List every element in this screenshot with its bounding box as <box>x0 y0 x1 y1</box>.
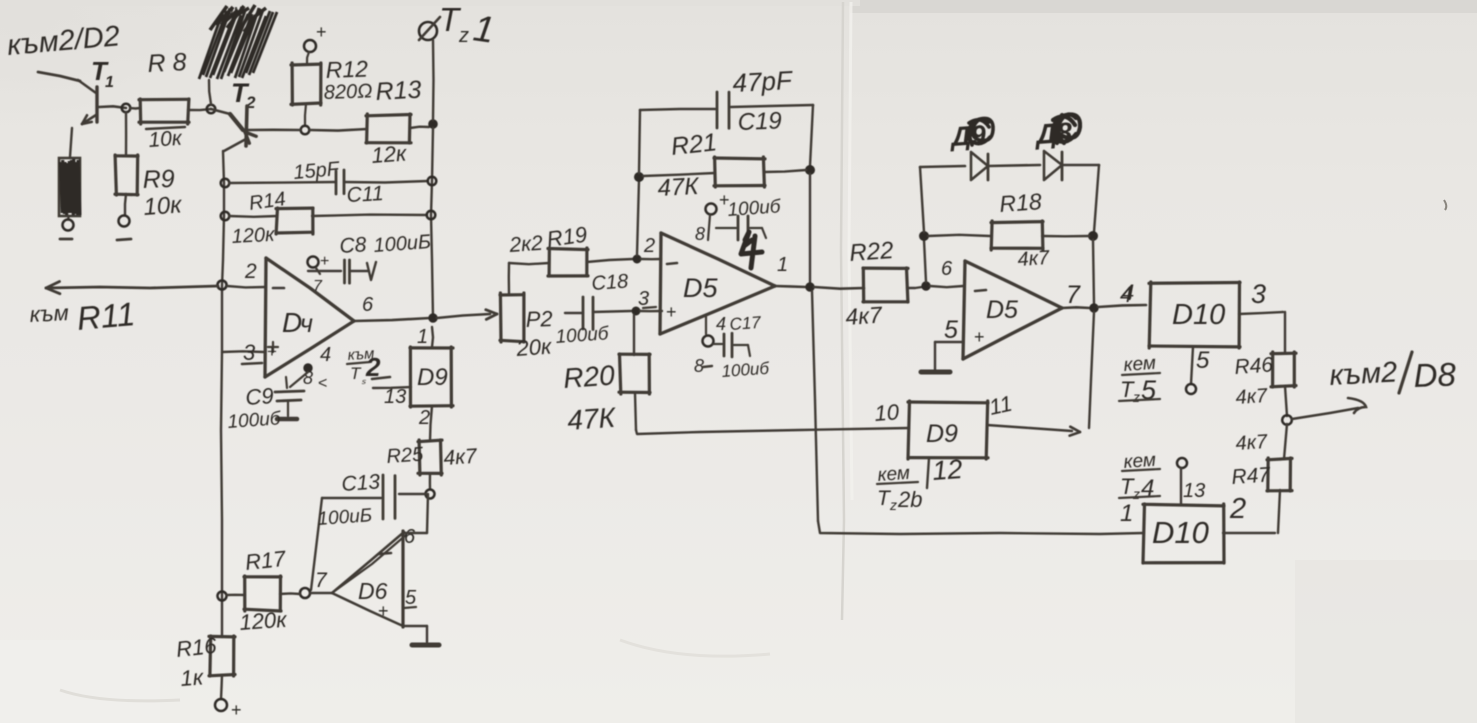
svg-text:+: + <box>974 327 985 347</box>
svg-text:3: 3 <box>243 340 256 365</box>
svg-text:10к: 10к <box>148 127 184 152</box>
svg-text:2: 2 <box>418 407 430 429</box>
svg-text:R13: R13 <box>375 76 422 106</box>
svg-text:2к2: 2к2 <box>508 232 544 257</box>
svg-text:+: + <box>666 302 677 322</box>
svg-text:R17: R17 <box>244 546 288 575</box>
svg-text:към: към <box>29 300 69 327</box>
svg-text:+: + <box>320 253 329 270</box>
svg-text:4: 4 <box>1141 475 1154 502</box>
svg-text:R12: R12 <box>325 56 368 83</box>
svg-text:D10: D10 <box>1172 299 1225 331</box>
svg-text:<: < <box>318 375 327 392</box>
svg-text:100uб: 100uб <box>721 359 771 381</box>
svg-text:5: 5 <box>944 316 958 344</box>
svg-text:2: 2 <box>1229 493 1246 525</box>
svg-text:47К: 47К <box>657 173 701 202</box>
svg-text:1: 1 <box>1120 500 1133 527</box>
svg-text:кум: кум <box>220 1 244 19</box>
svg-text:D9: D9 <box>926 420 958 448</box>
svg-text:Р2: Р2 <box>525 306 553 332</box>
svg-text:С19: С19 <box>737 107 782 136</box>
svg-text:С13: С13 <box>341 470 381 496</box>
svg-text:7: 7 <box>1066 281 1081 309</box>
svg-text:10: 10 <box>874 399 901 426</box>
svg-text:4: 4 <box>320 344 331 366</box>
svg-text:13: 13 <box>384 386 406 408</box>
svg-text:8: 8 <box>695 224 705 244</box>
svg-text:R21: R21 <box>670 128 719 161</box>
svg-text:100uб: 100uб <box>227 408 283 433</box>
svg-text:R46: R46 <box>1234 353 1274 379</box>
svg-text:D8: D8 <box>1413 356 1457 394</box>
svg-text:С18: С18 <box>591 270 629 295</box>
svg-text:z: z <box>458 25 469 47</box>
svg-text:1: 1 <box>105 74 114 91</box>
svg-text:6: 6 <box>362 294 374 316</box>
svg-text:1: 1 <box>417 326 428 348</box>
svg-text:13: 13 <box>1183 480 1205 502</box>
svg-text:120к: 120к <box>231 224 276 248</box>
svg-text:100uБ: 100uБ <box>317 505 373 530</box>
svg-text:12: 12 <box>931 454 963 486</box>
svg-text:z: z <box>889 497 897 513</box>
svg-text:4к7: 4к7 <box>845 301 884 330</box>
svg-text:C11: C11 <box>346 182 384 207</box>
svg-text:4: 4 <box>1120 282 1132 307</box>
svg-text:+: + <box>316 22 327 42</box>
svg-text:100uб: 100uб <box>727 196 783 221</box>
svg-text:5: 5 <box>405 587 417 609</box>
svg-text:6: 6 <box>404 526 416 548</box>
svg-text:4к7: 4к7 <box>1235 385 1269 409</box>
svg-text:820Ω: 820Ω <box>323 80 372 104</box>
svg-text:Д9: Д9 <box>948 120 987 152</box>
svg-text:z: z <box>1132 389 1140 405</box>
svg-text:2: 2 <box>643 235 655 257</box>
svg-text:+: + <box>267 342 277 361</box>
svg-text:7: 7 <box>315 569 328 592</box>
svg-text:+: + <box>231 700 242 720</box>
svg-text:R16: R16 <box>175 633 219 662</box>
svg-text:15pF: 15pF <box>293 158 342 184</box>
svg-text:ч: ч <box>300 310 313 338</box>
svg-text:47К: 47К <box>566 402 617 436</box>
svg-text:D9: D9 <box>417 364 448 391</box>
svg-text:4: 4 <box>716 314 726 334</box>
svg-text:4к7: 4к7 <box>1235 431 1269 455</box>
svg-text:2b: 2b <box>897 487 922 512</box>
svg-text:R 8: R 8 <box>147 48 187 78</box>
svg-text:R18: R18 <box>999 188 1043 217</box>
svg-text:D10: D10 <box>1152 515 1209 550</box>
svg-text:към2: към2 <box>1329 356 1398 392</box>
svg-text:С17: С17 <box>729 313 762 334</box>
svg-text:D5: D5 <box>986 296 1018 324</box>
svg-text:R20: R20 <box>562 359 616 394</box>
svg-text:R9: R9 <box>142 165 175 194</box>
svg-text:R25: R25 <box>386 443 425 468</box>
svg-text:D5: D5 <box>683 273 718 303</box>
svg-text:1: 1 <box>777 254 788 276</box>
svg-text:4к7: 4к7 <box>443 445 479 470</box>
svg-text:12к: 12к <box>371 141 409 168</box>
svg-text:С8: С8 <box>339 233 368 258</box>
svg-text:R22: R22 <box>849 237 895 267</box>
svg-text:10к: 10к <box>143 191 184 221</box>
svg-text:R47: R47 <box>1231 463 1272 489</box>
svg-text:4к7: 4к7 <box>1017 247 1051 271</box>
svg-text:6: 6 <box>941 258 953 280</box>
svg-text:2: 2 <box>244 260 257 283</box>
svg-text:R11: R11 <box>75 295 136 337</box>
svg-text:100uб: 100uб <box>555 323 611 348</box>
svg-text:5: 5 <box>1196 347 1210 374</box>
svg-text:+: + <box>378 601 389 621</box>
svg-text:С9: С9 <box>245 383 275 410</box>
svg-text:100uБ: 100uБ <box>373 231 432 257</box>
svg-text:1к: 1к <box>180 664 206 691</box>
svg-text:120к: 120к <box>239 607 289 635</box>
svg-text:20к: 20к <box>515 334 554 362</box>
svg-text:3: 3 <box>1251 279 1266 309</box>
svg-text:47pF: 47pF <box>732 65 795 98</box>
